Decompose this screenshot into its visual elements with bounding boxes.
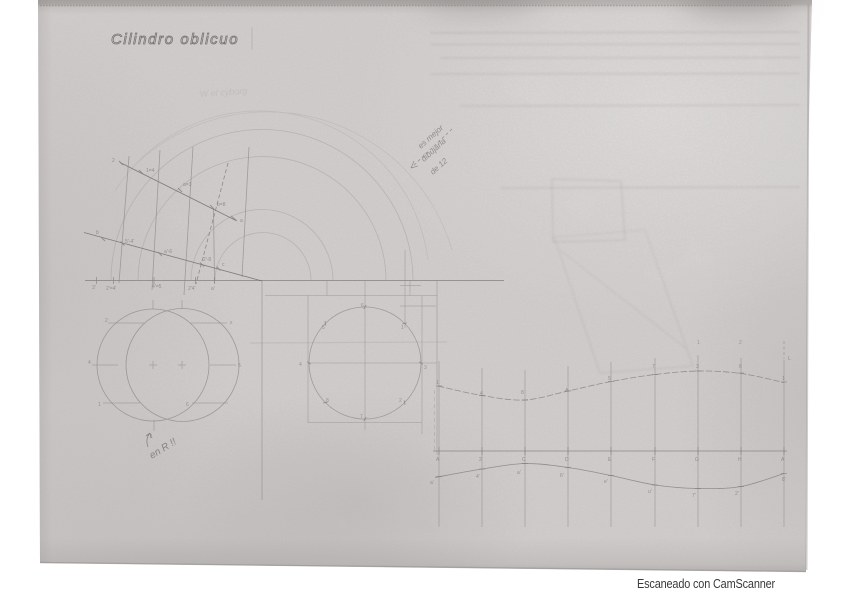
svg-text:5: 5: [608, 376, 611, 382]
svg-text:7: 7: [360, 414, 363, 420]
svg-text:b: b: [96, 230, 99, 236]
svg-text:6': 6': [560, 473, 564, 479]
svg-text:2: 2: [479, 457, 482, 463]
svg-text:5: 5: [238, 363, 241, 369]
svg-text:W el cyborg: W el cyborg: [199, 86, 247, 99]
svg-text:Cilindro oblicuo: Cilindro oblicuo: [111, 31, 239, 48]
svg-text:C: C: [522, 457, 526, 463]
svg-text:A: A: [436, 457, 440, 463]
svg-text:2': 2': [735, 491, 739, 497]
svg-text:a'-6: a'-6: [164, 249, 172, 255]
svg-text:1: 1: [697, 340, 700, 346]
svg-text:a=3: a=3: [183, 182, 192, 188]
svg-text:5: 5: [322, 325, 325, 331]
svg-text:6: 6: [361, 303, 364, 309]
svg-text:a': a': [211, 286, 215, 292]
svg-text:E: E: [608, 457, 612, 463]
svg-text:3: 3: [424, 365, 427, 371]
svg-text:4: 4: [299, 362, 302, 368]
svg-text:8: 8: [521, 390, 524, 396]
svg-text:c: c: [222, 262, 225, 268]
svg-text:H: H: [738, 457, 742, 463]
svg-text:3': 3': [92, 285, 96, 291]
svg-text:6: 6: [186, 402, 189, 408]
svg-text:G: G: [695, 457, 699, 463]
svg-text:a: a: [240, 218, 243, 224]
svg-text:8': 8': [782, 477, 786, 483]
svg-text:e': e': [604, 479, 608, 485]
svg-text:a': a': [430, 480, 434, 486]
svg-text:7': 7': [692, 493, 696, 499]
svg-text:2: 2: [399, 398, 402, 404]
svg-text:L: L: [788, 356, 791, 362]
svg-text:1: 1: [401, 325, 404, 331]
svg-text:5'-4': 5'-4': [125, 239, 134, 245]
svg-text:4': 4': [476, 474, 480, 480]
svg-text:4: 4: [88, 360, 91, 366]
svg-text:F: F: [652, 457, 655, 463]
svg-text:2'=4': 2'=4': [106, 286, 116, 292]
svg-text:2: 2: [112, 158, 115, 164]
svg-text:2: 2: [105, 318, 108, 324]
svg-text:de 12: de 12: [428, 156, 449, 176]
svg-text:2: 2: [739, 340, 742, 346]
svg-text:4: 4: [480, 391, 483, 397]
svg-text:a': a': [517, 470, 521, 476]
svg-text:en R !!: en R !!: [148, 436, 179, 461]
svg-text:2'-8: 2'-8: [203, 257, 211, 263]
svg-text:8: 8: [326, 398, 329, 404]
svg-text:u': u': [648, 489, 652, 495]
svg-text:1=4: 1=4: [146, 168, 155, 174]
svg-text:1: 1: [98, 402, 101, 408]
svg-text:1: 1: [782, 376, 785, 382]
svg-text:2'4': 2'4': [188, 286, 196, 292]
svg-text:x: x: [230, 320, 233, 326]
svg-text:b=8: b=8: [217, 202, 226, 208]
svg-text:1: 1: [436, 380, 439, 386]
svg-text:6: 6: [739, 364, 742, 370]
svg-text:4'=5: 4'=5: [152, 284, 162, 290]
svg-text:A: A: [781, 457, 785, 463]
svg-text:3: 3: [696, 364, 699, 370]
svg-text:D: D: [565, 457, 569, 463]
